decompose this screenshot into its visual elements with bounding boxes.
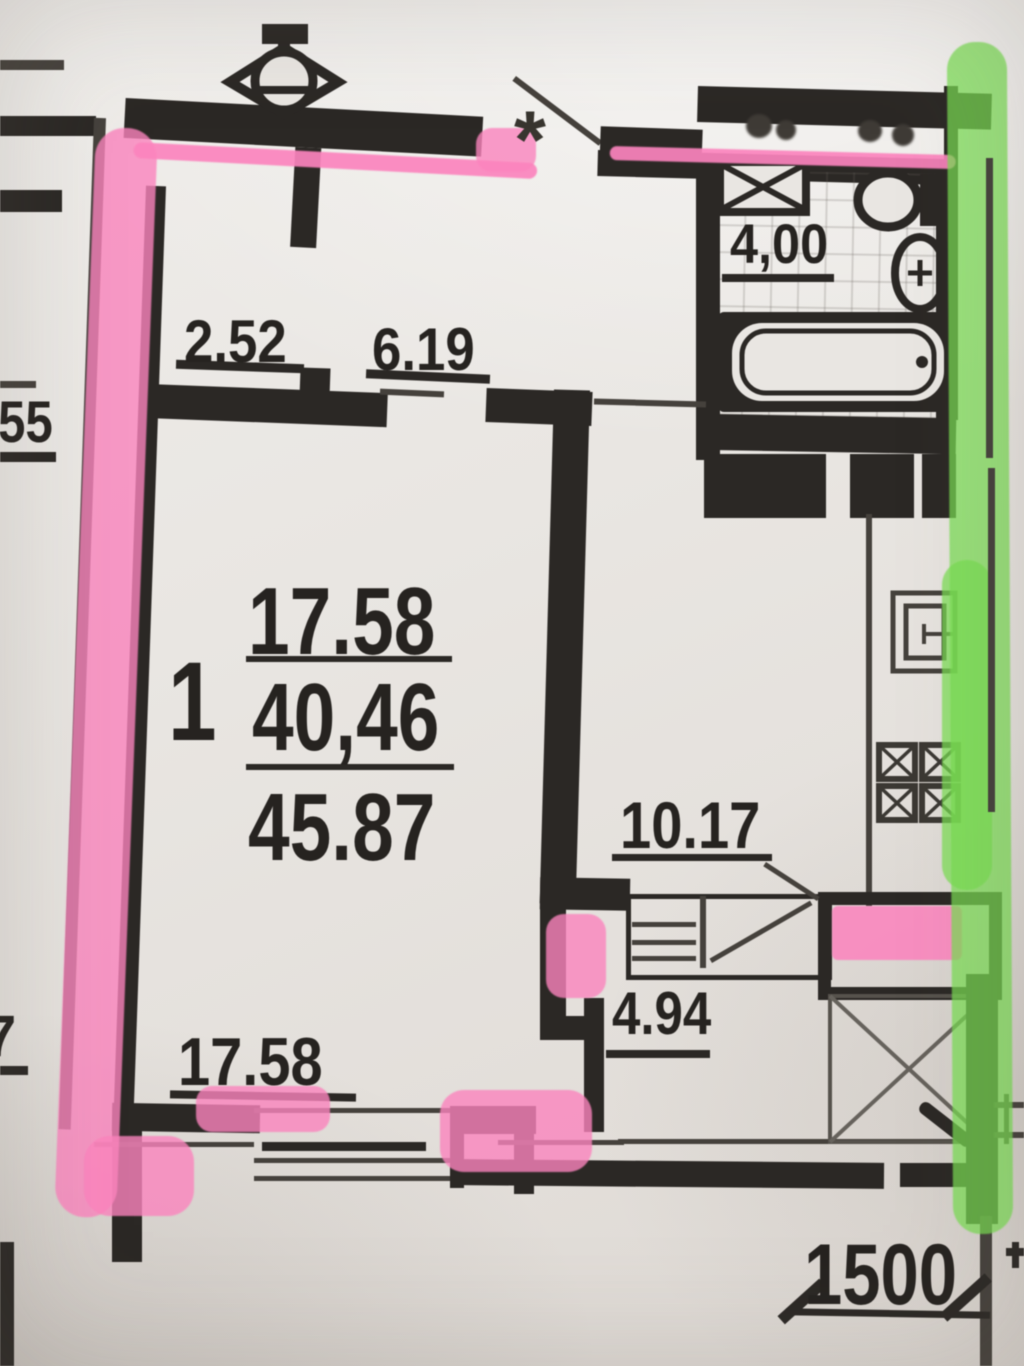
dim-4-00: 4,00 bbox=[730, 216, 828, 272]
door-star-marker: * bbox=[514, 100, 546, 182]
kitchen-partition-line bbox=[866, 514, 872, 906]
toilet-icon bbox=[850, 166, 946, 234]
room-count: 1 bbox=[168, 646, 217, 758]
green-highlight-bulge bbox=[942, 560, 992, 890]
window-line bbox=[262, 1142, 426, 1151]
area-total: 45.87 bbox=[248, 780, 435, 876]
plumbing-dot bbox=[746, 114, 772, 138]
window-line bbox=[254, 1158, 458, 1163]
closet-shelf-line bbox=[632, 922, 696, 927]
dim-17-58-bottom: 17.58 bbox=[178, 1028, 323, 1096]
area-living: 17.58 bbox=[248, 574, 435, 670]
top-wall-group bbox=[118, 92, 556, 274]
wall-segment bbox=[0, 1242, 14, 1366]
ceiling-fixture-icon bbox=[226, 20, 342, 116]
dim-1500: 1500 bbox=[804, 1232, 957, 1318]
closet-divider bbox=[700, 896, 706, 968]
floor-plan: 55 2.52 6.19 * 4,00 1 17.58 40,46 45.87 … bbox=[0, 0, 1024, 1366]
dim-6-19: 6.19 bbox=[372, 320, 475, 380]
pink-highlight-patch bbox=[546, 914, 606, 998]
bathtub-icon bbox=[716, 310, 958, 414]
window-line bbox=[254, 1176, 458, 1181]
dim-10-17: 10.17 bbox=[620, 792, 760, 858]
pink-highlight-blob bbox=[84, 1136, 194, 1216]
dim-2-52: 2.52 bbox=[184, 312, 287, 372]
bathroom-bottom-wall bbox=[698, 414, 957, 454]
wall-tab bbox=[299, 367, 330, 398]
plumbing-dot bbox=[776, 120, 796, 140]
dim-55: 55 bbox=[0, 394, 53, 452]
extension-line bbox=[980, 1216, 992, 1366]
duct-block bbox=[850, 454, 914, 518]
plumbing-dot bbox=[892, 124, 914, 146]
window-line bbox=[380, 389, 444, 398]
wall-segment bbox=[0, 60, 64, 70]
dimension-underline bbox=[606, 1050, 710, 1058]
sink-icon bbox=[892, 230, 956, 316]
duct-block bbox=[704, 454, 826, 518]
washing-machine-icon bbox=[716, 158, 810, 216]
wall-line bbox=[986, 158, 993, 458]
wall-segment bbox=[0, 116, 96, 136]
room-right-wall bbox=[540, 389, 590, 904]
floor-plan-photo: 55 2.52 6.19 * 4,00 1 17.58 40,46 45.87 … bbox=[0, 0, 1024, 1366]
dim-4-94: 4.94 bbox=[612, 984, 711, 1044]
pink-highlight-blob bbox=[440, 1090, 592, 1172]
tick-mark bbox=[1012, 1242, 1019, 1268]
wall-line bbox=[988, 468, 995, 812]
area-mid: 40,46 bbox=[252, 670, 439, 766]
plumbing-dot bbox=[858, 120, 882, 142]
closet-shelf-line bbox=[632, 956, 696, 961]
hall-top-line bbox=[594, 399, 706, 408]
closet-shelf-line bbox=[632, 940, 696, 945]
pink-highlight-patch bbox=[832, 906, 962, 960]
dim-7: 7 bbox=[0, 1008, 16, 1066]
dimension-line bbox=[0, 381, 36, 388]
dimension-underline bbox=[722, 274, 834, 282]
wall-segment bbox=[0, 190, 62, 212]
room-top-wall bbox=[147, 384, 388, 427]
